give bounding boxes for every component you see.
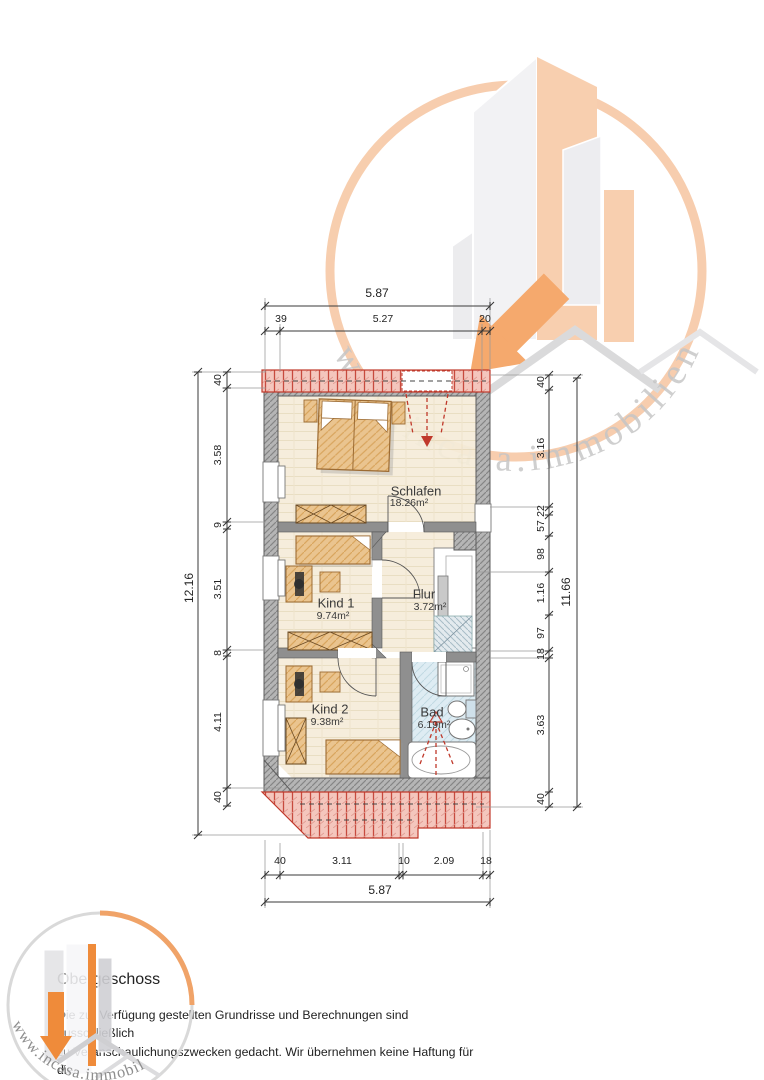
room-label-kind2: Kind 2 [312,702,349,717]
dim-left-chain-5: 4.11 [212,712,224,732]
dim-left-chain-2: 9 [212,522,224,528]
dim-right-chain-6: 97 [535,627,547,639]
room-area-kind2: 9.38m² [311,716,344,728]
dim-left-chain-1: 3.58 [212,445,224,465]
dim-left-chain-4: 8 [212,650,224,656]
dim-bottom-total: 5.87 [368,883,391,897]
room-label-kind1: Kind 1 [318,596,355,611]
room-area-kind1: 9.74m² [317,610,350,622]
page-title: Obergeschoss [57,971,160,989]
dim-left-chain-6: 40 [212,791,224,803]
disclaimer-line-2: zu Veranschaulichungszwecken gedacht. Wi… [57,1043,487,1080]
dim-right-chain-0: 40 [535,376,547,388]
room-area-schlafen: 18.26m² [390,497,429,509]
dim-bottom-chain-4: 18 [480,855,492,867]
dim-top-chain-2: 20 [479,313,491,325]
dim-right-chain-8: 3.63 [535,715,547,735]
dim-right-chain-4: 98 [535,548,547,560]
disclaimer-line-1: Die zur Verfügung gestellten Grundrisse … [57,1006,487,1043]
dim-top-total: 5.87 [365,286,388,300]
floorplan-page: www.incasa.immobilien [0,0,764,1080]
room-label-bad: Bad [420,705,443,720]
dim-left-chain-3: 3.51 [212,579,224,599]
dim-right-chain-5: 1.16 [535,583,547,603]
dim-right-chain-2: 22 [535,505,547,517]
dim-bottom-chain-0: 40 [274,855,286,867]
room-area-bad: 6.19m² [418,719,451,731]
dim-right-chain-1: 3.16 [535,438,547,458]
dim-bottom-chain-1: 3.11 [332,855,352,867]
dim-top-chain-0: 39 [275,313,287,325]
dim-left-total: 12.16 [182,573,196,603]
text-layer: 5.87 39 5.27 20 40 3.11 10 2.09 18 5.87 … [0,0,764,1080]
dim-bottom-chain-3: 2.09 [434,855,454,867]
dim-top-chain-1: 5.27 [373,313,393,325]
disclaimer-text: Die zur Verfügung gestellten Grundrisse … [57,1006,487,1080]
dim-bottom-chain-2: 10 [398,855,410,867]
dim-right-chain-7: 18 [535,648,547,660]
dim-left-chain-0: 40 [212,374,224,386]
room-label-flur: Flur [413,587,435,602]
dim-right-chain-3: 57 [535,520,547,532]
room-area-flur: 3.72m² [414,601,447,613]
dim-right-chain-9: 40 [535,793,547,805]
dim-right-total: 11.66 [559,577,573,606]
